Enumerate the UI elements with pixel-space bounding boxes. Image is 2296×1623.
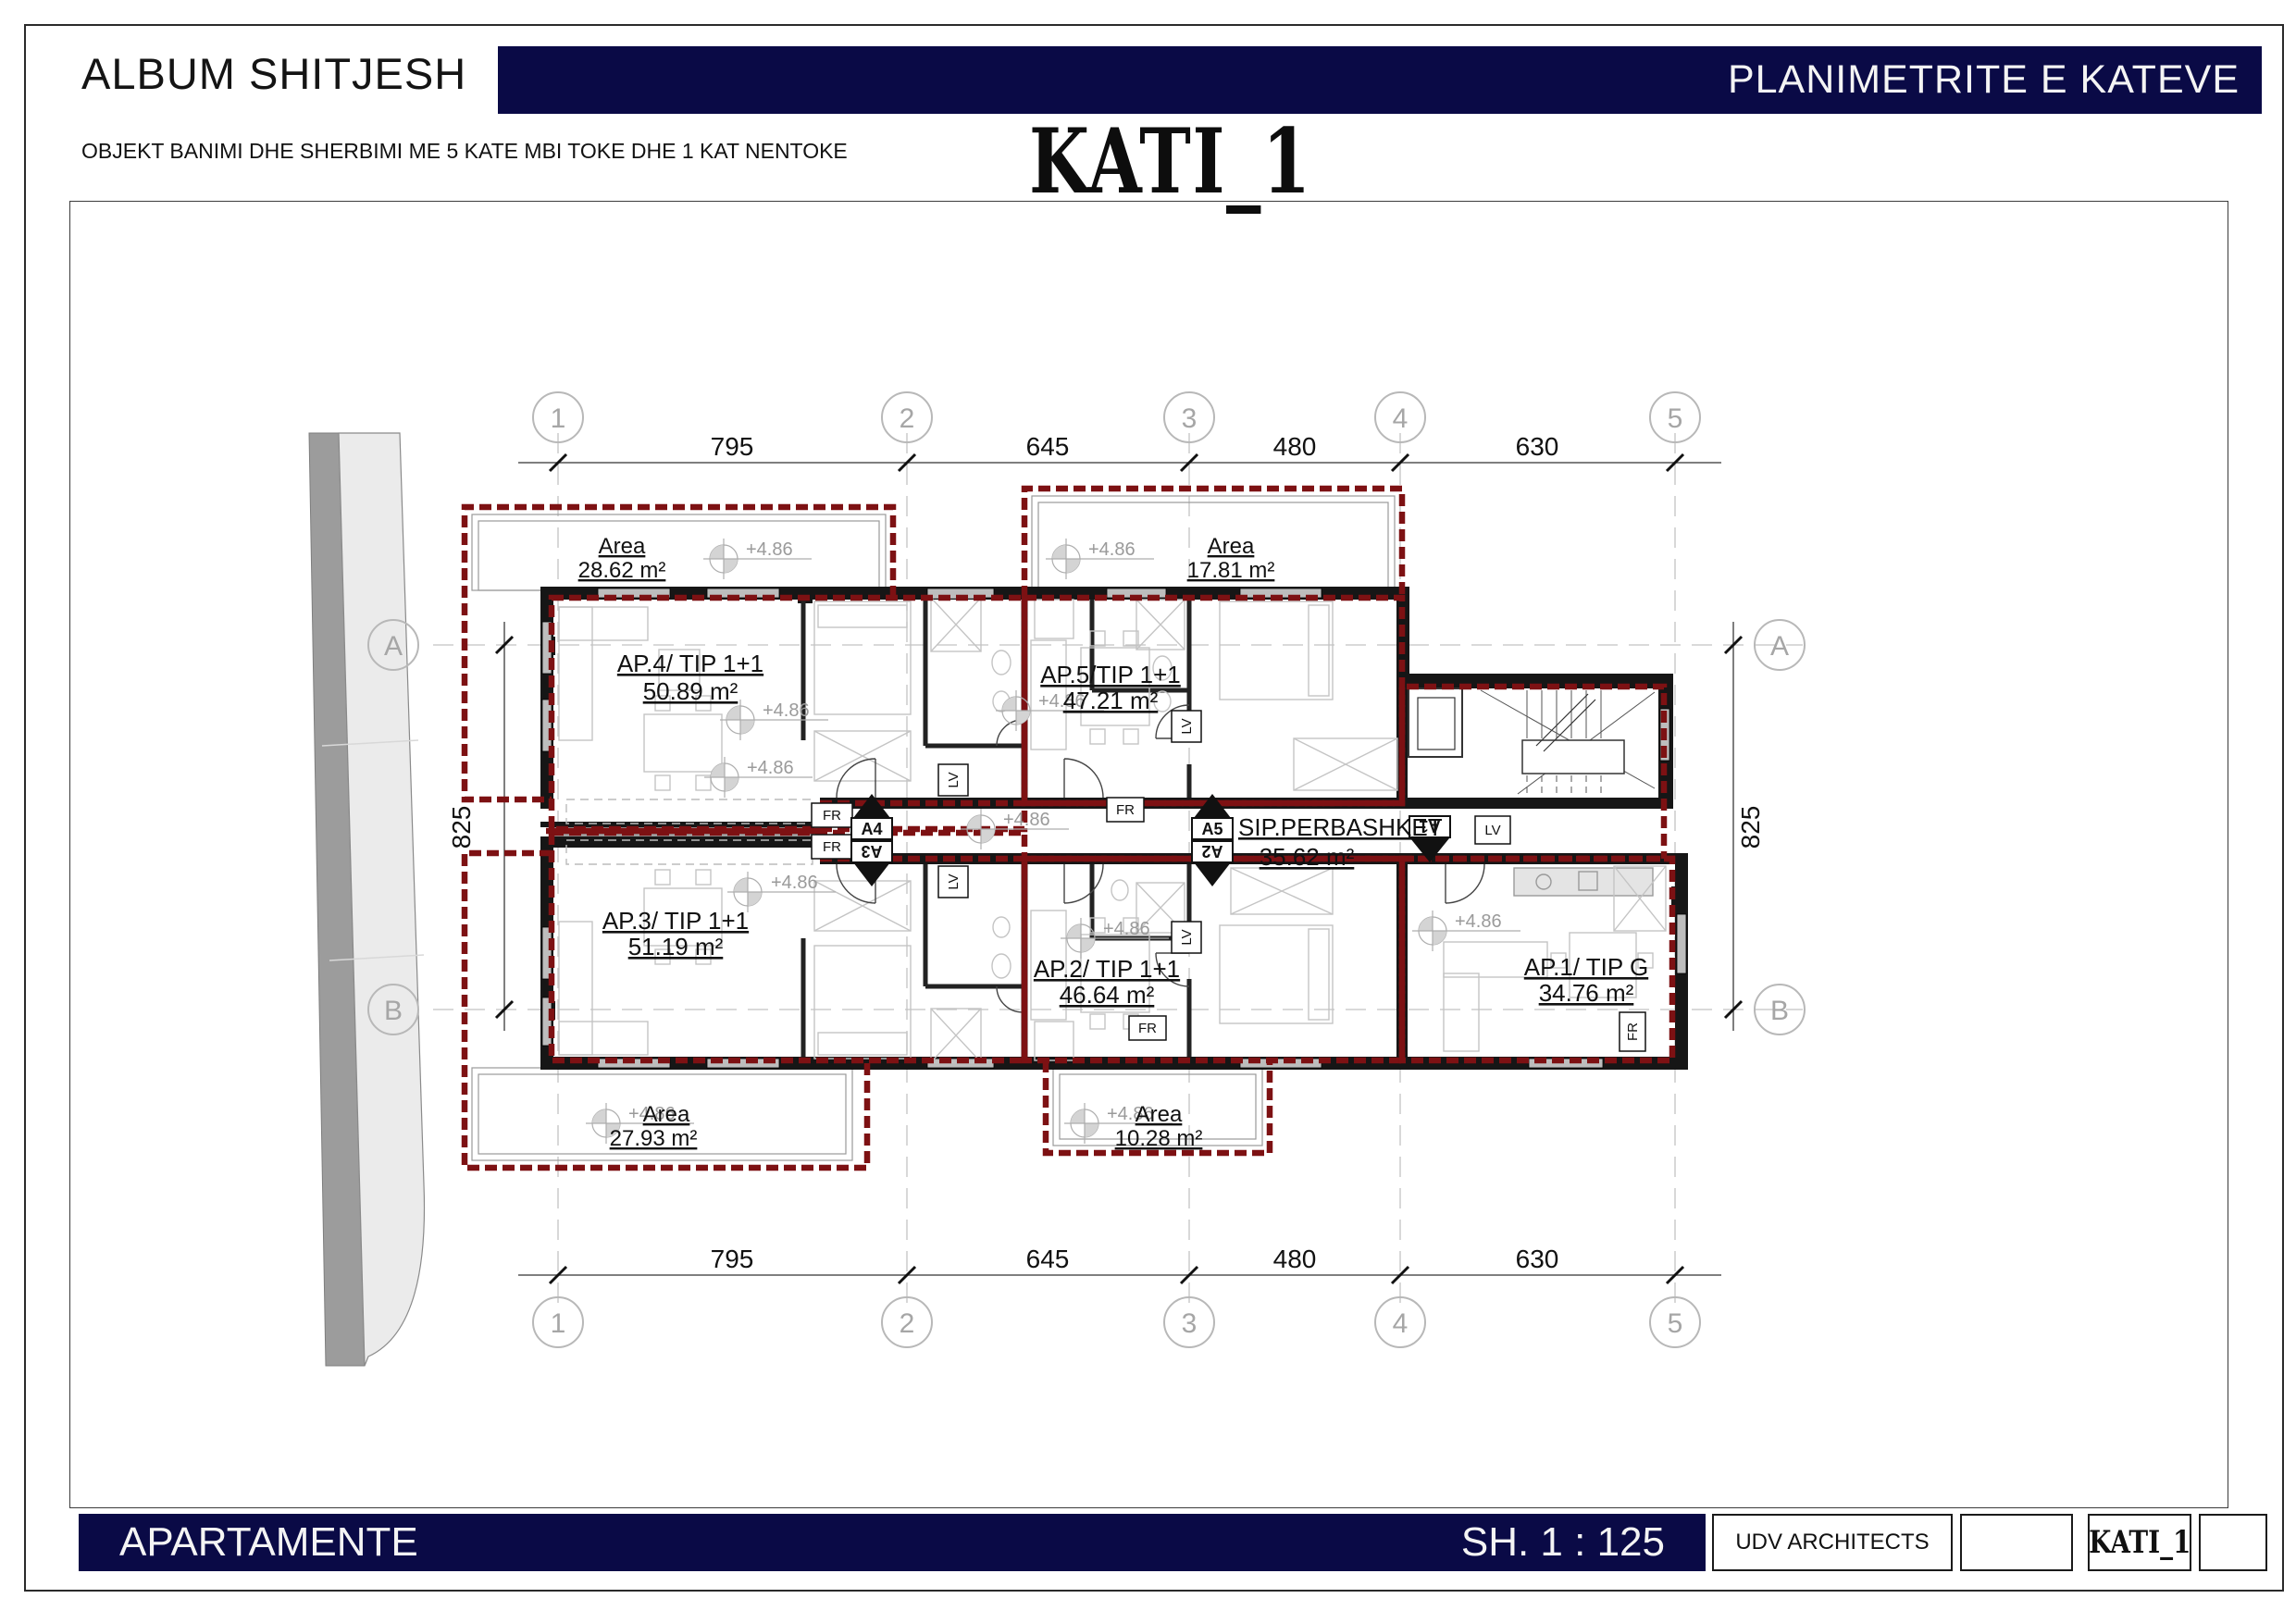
dim-top-3: 480 xyxy=(1273,432,1317,461)
architect-name: UDV ARCHITECTS xyxy=(1735,1530,1929,1555)
apartment-area-ap2: 46.64 m² xyxy=(1060,981,1155,1009)
grid-row-b-left: B xyxy=(384,996,403,1026)
terrace-tm-label: Area xyxy=(1208,534,1255,559)
grid-col-4-top: 4 xyxy=(1393,403,1409,434)
elevation-text: +4.86 xyxy=(747,758,794,778)
apartment-area-ap4: 50.89 m² xyxy=(643,677,738,705)
elevation-text: +4.86 xyxy=(1003,810,1050,830)
floor-plan-canvas: 795 645 480 630 795 645 480 630 825 825 … xyxy=(69,201,2227,1506)
dim-bottom-2: 645 xyxy=(1026,1245,1070,1273)
grid-col-1-top: 1 xyxy=(551,403,566,434)
footer-section-label: APARTAMENTE xyxy=(119,1519,418,1566)
grid-col-3-bottom: 3 xyxy=(1182,1308,1198,1339)
common-area-value: 35.62 m² xyxy=(1260,843,1355,871)
floor-title: KATI_1 xyxy=(1029,109,1333,214)
grid-row-b-right: B xyxy=(1770,996,1789,1026)
road xyxy=(309,433,425,1366)
stair-core xyxy=(1409,688,1655,796)
grid-row-a-right: A xyxy=(1770,631,1789,662)
project-subtitle: OBJEKT BANIMI DHE SHERBIMI ME 5 KATE MBI… xyxy=(81,139,848,164)
terrace-tl-label: Area xyxy=(599,534,646,559)
sheet-code-box: KATI_1 xyxy=(2088,1514,2191,1571)
lv-tag: LV xyxy=(946,772,962,787)
dim-top-4: 630 xyxy=(1516,432,1559,461)
grid-col-5-bottom: 5 xyxy=(1668,1308,1683,1339)
apartment-label-ap1: AP.1/ TIP G xyxy=(1524,953,1648,981)
elevation-text: +4.86 xyxy=(746,539,793,560)
fr-tag: FR xyxy=(1138,1021,1157,1036)
section-marker-a3: A3 xyxy=(861,842,882,861)
architect-box: UDV ARCHITECTS xyxy=(1712,1514,1953,1571)
empty-title-box xyxy=(1960,1514,2073,1571)
dim-right: 825 xyxy=(1736,806,1765,849)
terrace-bm-area: 10.28 m² xyxy=(1115,1126,1203,1151)
elevator xyxy=(1409,688,1462,757)
footer-scale-label: SH. 1 : 125 xyxy=(1461,1519,1665,1566)
apartment-label-ap3: AP.3/ TIP 1+1 xyxy=(602,907,749,935)
grid-col-5-top: 5 xyxy=(1668,403,1683,434)
elevation-text: +4.86 xyxy=(771,873,818,893)
drawing-sheet: ALBUM SHITJESH PLANIMETRITE E KATEVE OBJ… xyxy=(0,0,2296,1623)
dim-top-1: 795 xyxy=(711,432,754,461)
terrace-bl-label: Area xyxy=(643,1102,690,1127)
banner-title: PLANIMETRITE E KATEVE xyxy=(1728,57,2240,103)
apartment-area-ap5: 47.21 m² xyxy=(1063,687,1159,714)
common-area-label: SIP.PERBASHKET xyxy=(1238,813,1443,841)
album-title: ALBUM SHITJESH xyxy=(81,48,466,99)
section-marker-a5: A5 xyxy=(1201,820,1222,838)
fr-tag: FR xyxy=(1116,802,1135,818)
dim-bottom-1: 795 xyxy=(711,1245,754,1273)
lv-tag: LV xyxy=(1179,929,1195,945)
footer-bar: APARTAMENTE SH. 1 : 125 xyxy=(79,1514,1706,1571)
dim-bottom-3: 480 xyxy=(1273,1245,1317,1273)
elevation-text: +4.86 xyxy=(1455,911,1502,932)
apartment-area-ap3: 51.19 m² xyxy=(628,933,724,960)
grid-row-a-left: A xyxy=(384,631,403,662)
section-marker-a4: A4 xyxy=(861,820,882,838)
section-marker-a2: A2 xyxy=(1201,842,1222,861)
grid-col-1-bottom: 1 xyxy=(551,1308,566,1339)
apartment-label-ap5: AP.5/TIP 1+1 xyxy=(1040,661,1181,688)
dim-top-2: 645 xyxy=(1026,432,1070,461)
apartment-label-ap4: AP.4/ TIP 1+1 xyxy=(617,650,763,677)
grid-col-4-bottom: 4 xyxy=(1393,1308,1409,1339)
terrace-bm-label: Area xyxy=(1136,1102,1183,1127)
fr-tag: FR xyxy=(823,839,841,855)
elevation-text: +4.86 xyxy=(1088,539,1136,560)
stair-landing xyxy=(1522,740,1624,774)
dim-bottom-4: 630 xyxy=(1516,1245,1559,1273)
lv-tag: LV xyxy=(1179,718,1195,734)
fr-tag: FR xyxy=(1625,1022,1641,1041)
dim-left: 825 xyxy=(447,806,476,849)
banner: PLANIMETRITE E KATEVE xyxy=(498,46,2262,114)
elevation-text: +4.86 xyxy=(763,700,810,721)
terrace-bl-area: 27.93 m² xyxy=(610,1126,698,1151)
sheet-code: KATI_1 xyxy=(2089,1524,2191,1561)
empty-rev-box xyxy=(2199,1514,2267,1571)
grid-col-2-bottom: 2 xyxy=(900,1308,915,1339)
lv-tag: LV xyxy=(946,873,962,889)
fr-tag: FR xyxy=(823,808,841,824)
terrace-tl-area: 28.62 m² xyxy=(578,558,666,583)
grid-col-3-top: 3 xyxy=(1182,403,1198,434)
grid-col-2-top: 2 xyxy=(900,403,915,434)
apartment-label-ap2: AP.2/ TIP 1+1 xyxy=(1034,955,1180,983)
elevation-text: +4.86 xyxy=(1103,919,1150,939)
terrace-tm-area: 17.81 m² xyxy=(1187,558,1275,583)
apartment-area-ap1: 34.76 m² xyxy=(1539,979,1634,1007)
lv-tag: LV xyxy=(1484,823,1500,838)
